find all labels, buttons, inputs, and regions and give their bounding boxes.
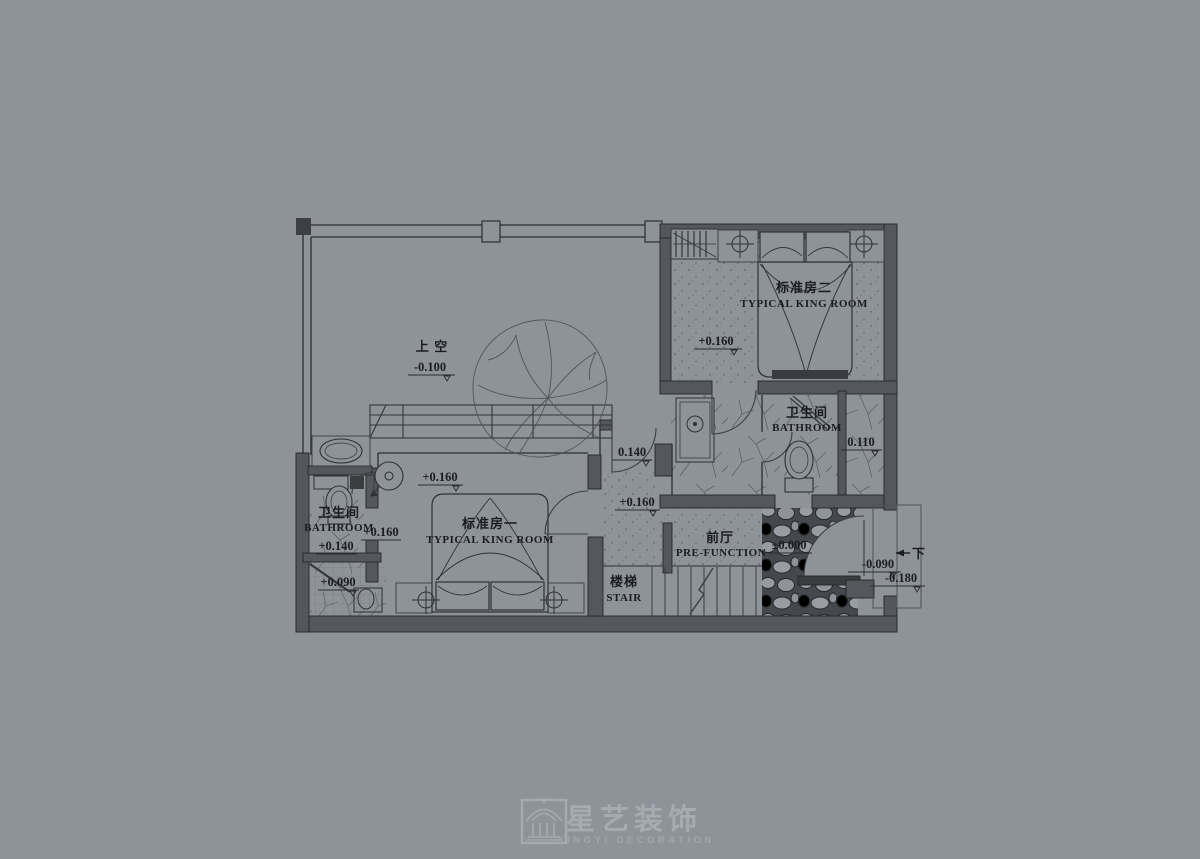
wall-king2-bath-a [660, 381, 712, 394]
corner-block-top-left [296, 218, 311, 235]
stair-break-line [690, 568, 713, 614]
king1-nightstand-left [396, 583, 432, 613]
down-direction-label: 下 [912, 546, 926, 561]
wall-king2-bath-b [758, 381, 897, 394]
bath1-label-cn: 卫生间 [318, 505, 360, 520]
void-label-cn: 上 空 [416, 339, 449, 354]
stair-label-cn: 楼梯 [610, 574, 638, 589]
king2-level: +0.160 [698, 334, 733, 348]
king2-tv-cabinet [772, 370, 848, 379]
wall-right-upper [884, 224, 897, 510]
corridor-level-b: +0.160 [619, 495, 654, 509]
king1-label-en: TYPICAL KING ROOM [426, 534, 554, 546]
round-basin-table [371, 462, 403, 496]
door-king1-entry [545, 491, 588, 534]
column-top-2 [645, 221, 662, 242]
king2-nightstand-right [848, 230, 884, 262]
bath1-tub [320, 439, 362, 463]
bath1-shower-level: +0.090 [320, 575, 355, 589]
exit-level-a: -0.090 [862, 557, 894, 571]
corridor-level-a: 0.140 [618, 445, 646, 459]
tree-symbol [473, 320, 607, 457]
exit-level-b: -0.180 [885, 571, 917, 585]
column-top-1 [482, 221, 500, 242]
king1-nightstand-right [548, 583, 584, 613]
bath1-level: +0.140 [318, 539, 353, 553]
king2-nightstand-left [718, 230, 758, 262]
bath2-shower-level: 0.110 [847, 435, 874, 449]
brand-name-en: XINGYI DECORATION [557, 835, 715, 846]
wall-corridor-stub-b [655, 444, 672, 476]
brand-name-cn: 星艺装饰 [566, 803, 702, 836]
wall-king1-right-b [588, 537, 603, 616]
void-railing [370, 405, 612, 438]
wall-bath2-divider [838, 391, 846, 505]
prefunction-label-cn: 前厅 [706, 530, 734, 545]
wall-left-lower [296, 453, 309, 632]
king1-label-cn: 标准房一 [461, 516, 518, 531]
void-level: -0.100 [414, 360, 446, 374]
floor-plan-page: 上 空 -0.100 标准房二 TYPICAL KING ROOM +0.160… [0, 0, 1200, 859]
wall-tub-bottom [308, 466, 372, 475]
wall-below-bath2-a [660, 495, 775, 508]
stair-treads [652, 567, 756, 616]
down-direction-arrow-icon [896, 550, 910, 557]
floor-plan-svg: 上 空 -0.100 标准房二 TYPICAL KING ROOM +0.160… [0, 0, 1200, 859]
king1-bed [432, 494, 548, 612]
bath2-toilet [785, 441, 813, 492]
king2-label-cn: 标准房二 [775, 280, 832, 295]
wall-void-king2 [660, 238, 671, 383]
prefunction-level: ±0.000 [772, 538, 807, 552]
king1-level: +0.160 [422, 470, 457, 484]
bath2-label-cn: 卫生间 [786, 405, 828, 420]
prefunction-label-en: PRE-FUNCTION [676, 547, 766, 559]
king2-label-en: TYPICAL KING ROOM [740, 298, 868, 310]
bath1-entry-level: +0.160 [363, 525, 398, 539]
wall-exit-corner [846, 580, 874, 598]
bath2-vanity [676, 398, 714, 462]
stair-label-en: STAIR [606, 592, 642, 604]
wall-stair-newel [663, 523, 672, 573]
wall-king1-right-a [588, 455, 601, 489]
brand-watermark: 星艺装饰 XINGYI DECORATION [522, 798, 715, 846]
bath2-label-en: BATHROOM [772, 422, 842, 434]
wall-bottom [296, 616, 897, 632]
